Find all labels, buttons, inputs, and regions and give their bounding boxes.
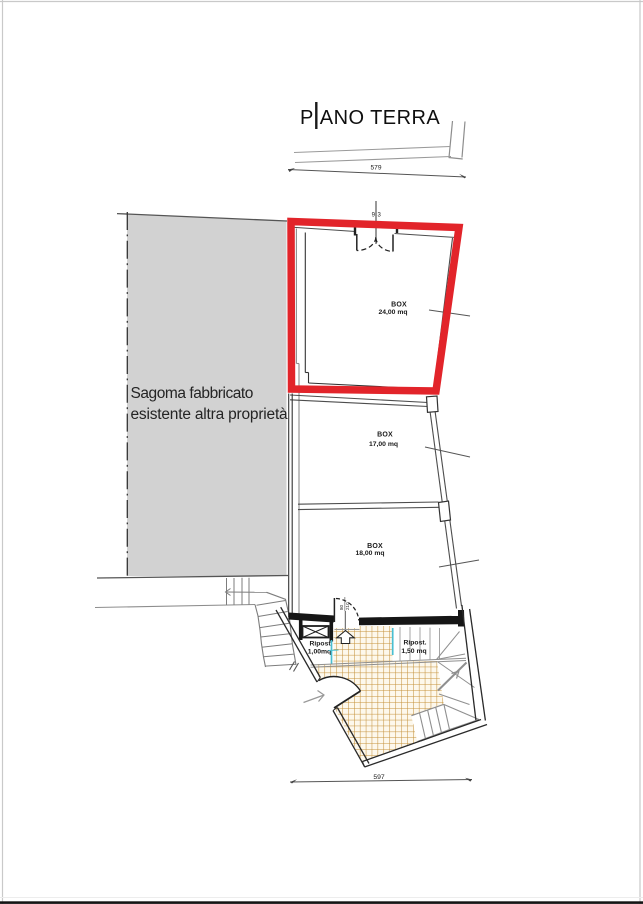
svg-text:18,00 mq: 18,00 mq xyxy=(355,550,384,557)
svg-text:BOX: BOX xyxy=(367,543,383,550)
svg-text:597: 597 xyxy=(373,774,385,781)
svg-text:Ripost.: Ripost. xyxy=(309,641,332,648)
svg-text:579: 579 xyxy=(370,165,381,172)
svg-text:Sagoma fabbricato: Sagoma fabbricato xyxy=(131,385,253,402)
svg-text:1,00mq: 1,00mq xyxy=(308,648,331,655)
svg-text:BOX: BOX xyxy=(391,302,407,309)
svg-text:1,50 mq: 1,50 mq xyxy=(401,648,426,655)
svg-text:BOX: BOX xyxy=(377,432,393,439)
svg-text:80: 80 xyxy=(339,604,344,610)
svg-text:24,00 mq: 24,00 mq xyxy=(378,309,407,316)
svg-text:9: 9 xyxy=(372,213,376,219)
svg-text:Ripost.: Ripost. xyxy=(403,640,426,647)
svg-text:esistente altra proprietà: esistente altra proprietà xyxy=(131,406,289,423)
svg-text:PIANO TERRA: PIANO TERRA xyxy=(300,107,440,129)
svg-text:17,00 mq: 17,00 mq xyxy=(369,441,398,448)
svg-text:3: 3 xyxy=(378,213,382,219)
svg-text:210: 210 xyxy=(345,602,350,610)
